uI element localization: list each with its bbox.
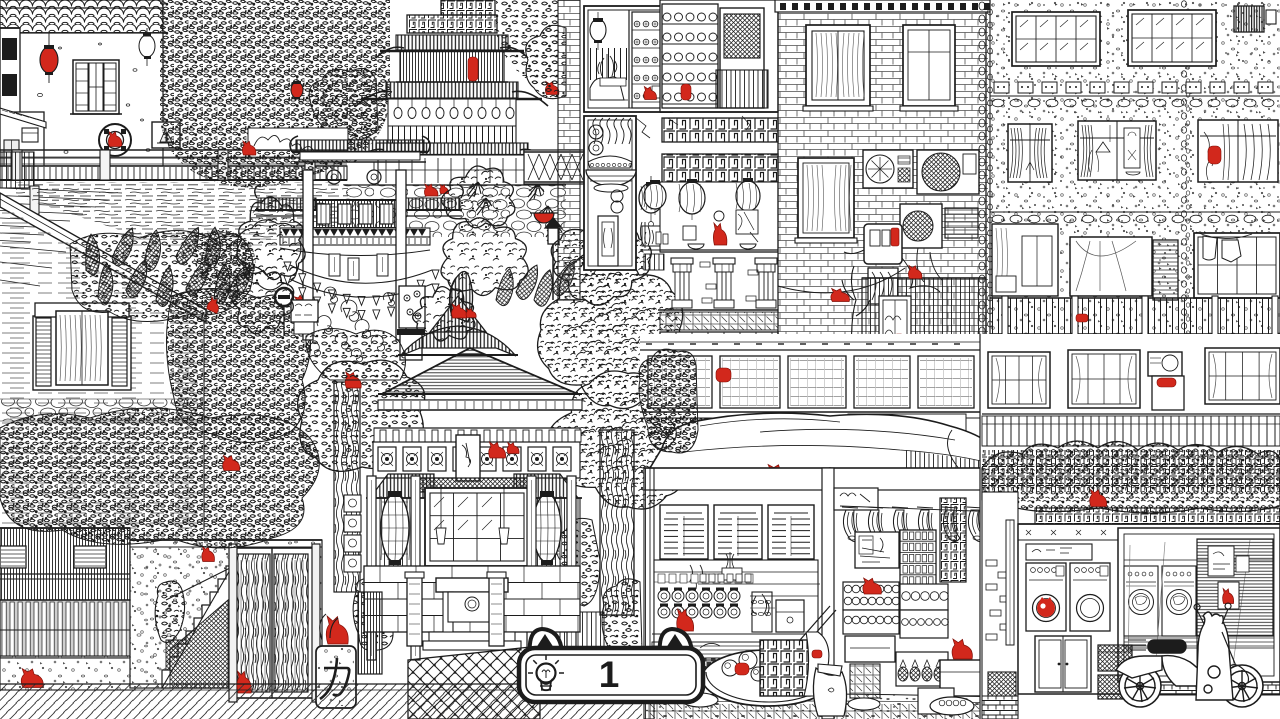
svg-text:1: 1 xyxy=(599,654,620,695)
